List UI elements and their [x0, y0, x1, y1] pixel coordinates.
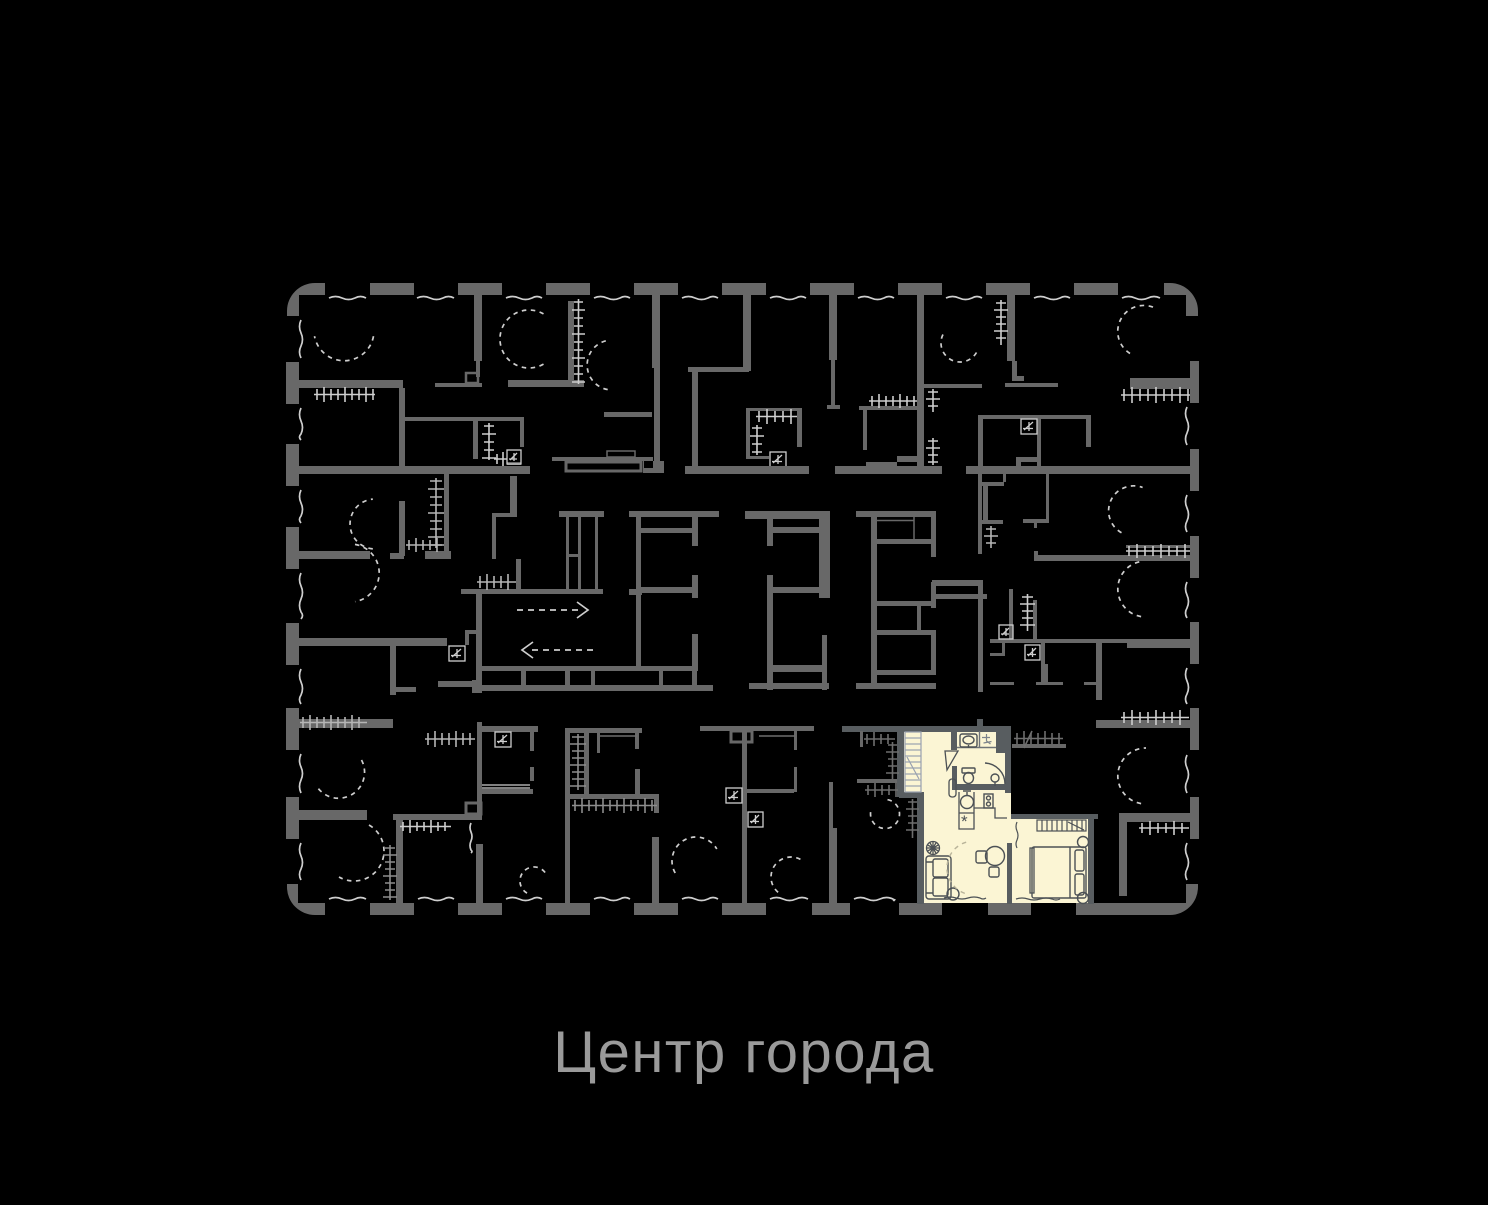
svg-text:*: * — [961, 812, 968, 831]
svg-text:Центр города: Центр города — [553, 1020, 935, 1085]
